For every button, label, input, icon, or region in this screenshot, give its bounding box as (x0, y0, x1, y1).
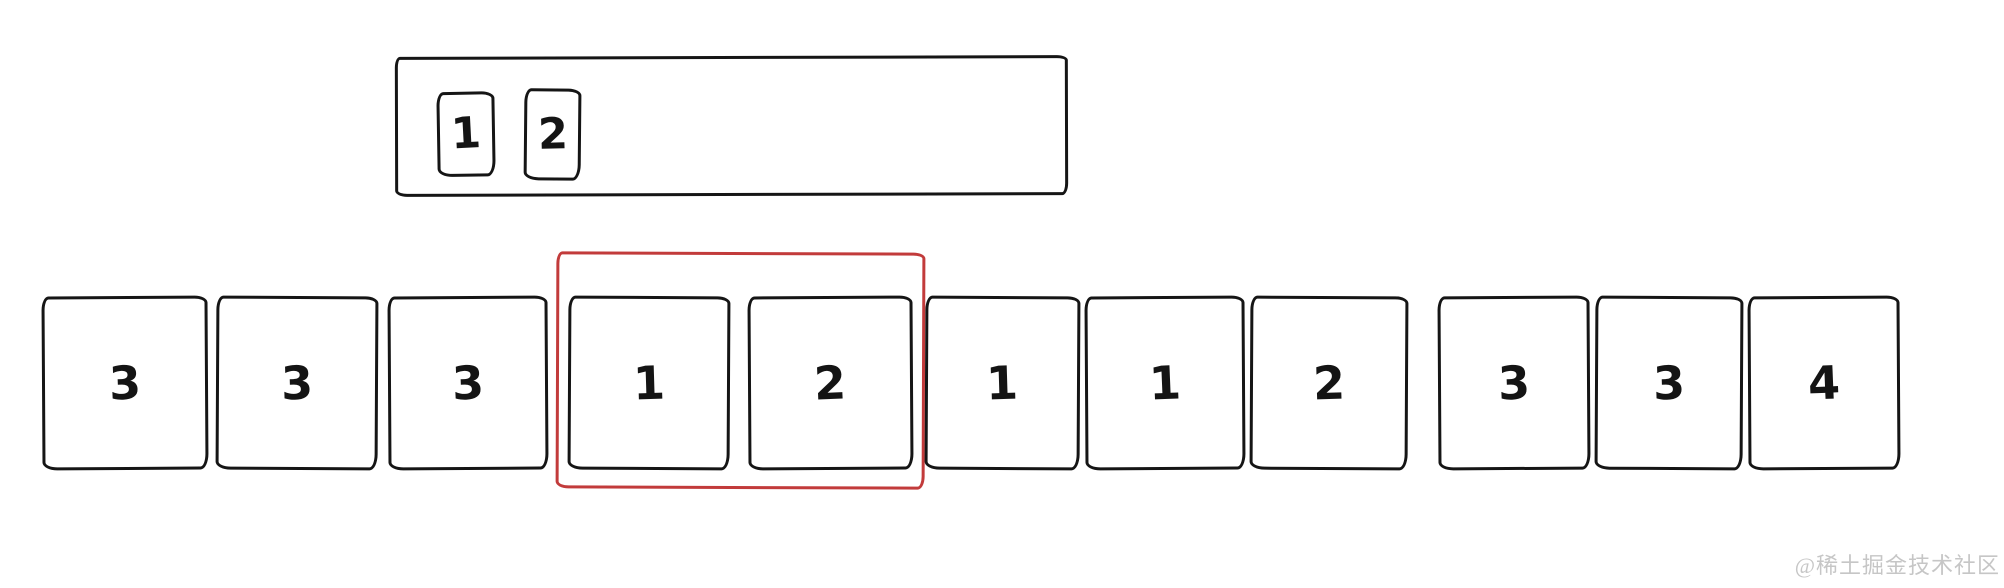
array-cell-10-value: 4 (1807, 359, 1841, 406)
array-cell-7-value: 2 (1312, 360, 1345, 407)
array-cell-6: 1 (1084, 296, 1245, 471)
pattern-cell-1-value: 2 (537, 113, 568, 157)
array-cell-6-value: 1 (1148, 359, 1182, 406)
array-cell-9-value: 3 (1652, 360, 1685, 407)
array-cell-4-value: 2 (814, 359, 848, 406)
pattern-cell-1: 2 (524, 88, 582, 181)
array-cell-2-value: 3 (451, 359, 485, 406)
array-cell-3: 1 (568, 296, 731, 471)
array-cell-7: 2 (1250, 296, 1409, 471)
array-cell-1-value: 3 (280, 360, 313, 407)
array-cell-3-value: 1 (632, 360, 665, 407)
array-cell-8-value: 3 (1497, 359, 1531, 406)
watermark-text: @稀土掘金技术社区 (1795, 548, 2000, 580)
array-cell-10: 4 (1747, 296, 1900, 471)
array-cell-4: 2 (747, 295, 913, 470)
array-cell-9: 3 (1595, 296, 1744, 471)
array-cell-0-value: 3 (108, 359, 142, 406)
array-cell-8: 3 (1437, 296, 1590, 471)
sketch-canvas: 1 2 3 3 3 1 2 1 1 2 3 (0, 0, 2004, 588)
pattern-cell-0-value: 1 (450, 112, 482, 156)
pattern-cell-0: 1 (436, 91, 495, 177)
array-cell-5-value: 1 (986, 360, 1019, 407)
array-cell-5: 1 (925, 296, 1081, 471)
array-cell-2: 3 (387, 296, 548, 471)
array-cell-1: 3 (216, 296, 379, 471)
array-cell-0: 3 (41, 295, 208, 470)
pattern-window-box: 1 2 (395, 55, 1068, 197)
